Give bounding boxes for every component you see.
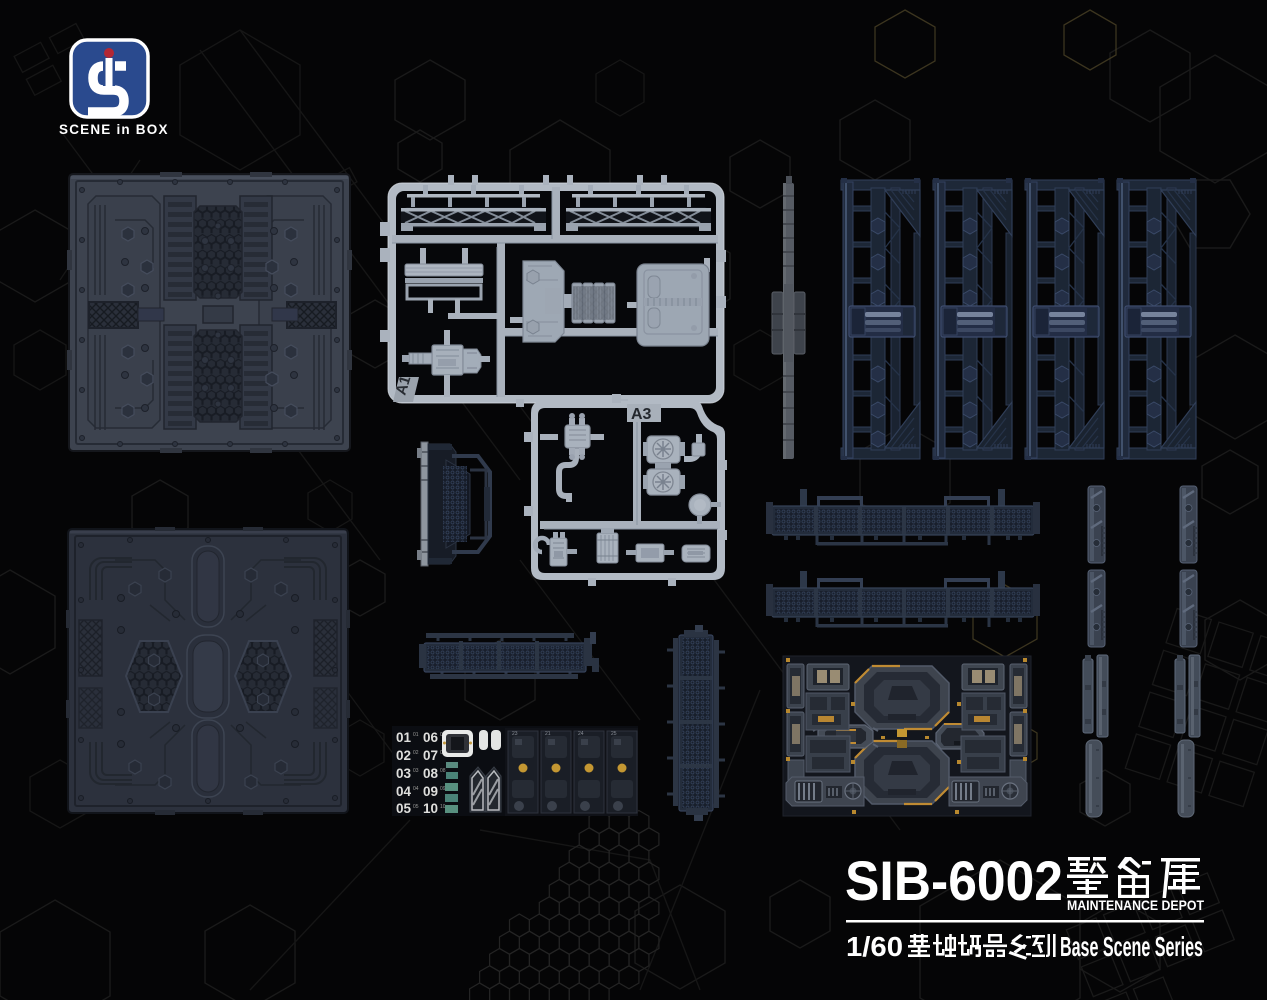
- svg-text:03: 03: [413, 768, 419, 774]
- svg-text:1/60: 1/60: [846, 931, 903, 962]
- svg-text:04: 04: [396, 784, 412, 799]
- svg-text:A3: A3: [631, 406, 652, 423]
- svg-text:09: 09: [423, 784, 438, 799]
- svg-text:04: 04: [413, 786, 419, 792]
- svg-text:08: 08: [423, 766, 439, 781]
- svg-text:10: 10: [423, 801, 438, 816]
- svg-text:25: 25: [611, 731, 617, 737]
- svg-text:03: 03: [396, 766, 412, 781]
- svg-text:01: 01: [396, 730, 412, 745]
- svg-text:01: 01: [413, 732, 419, 738]
- svg-text:Base Scene Series: Base Scene Series: [1060, 931, 1203, 962]
- svg-text:SCENE in BOX: SCENE in BOX: [59, 122, 169, 137]
- svg-text:05: 05: [413, 804, 419, 810]
- svg-text:24: 24: [578, 731, 584, 737]
- svg-text:23: 23: [512, 731, 518, 737]
- svg-text:MAINTENANCE DEPOT: MAINTENANCE DEPOT: [1067, 898, 1205, 913]
- svg-text:21: 21: [545, 731, 551, 737]
- svg-text:08: 08: [440, 768, 446, 774]
- svg-text:SIB-6002: SIB-6002: [845, 849, 1063, 912]
- svg-text:06: 06: [423, 730, 439, 745]
- svg-text:05: 05: [396, 801, 412, 816]
- svg-text:09: 09: [440, 786, 446, 792]
- svg-text:02: 02: [396, 748, 411, 763]
- svg-text:02: 02: [413, 750, 419, 756]
- svg-text:07: 07: [423, 748, 438, 763]
- svg-text:10: 10: [440, 804, 446, 810]
